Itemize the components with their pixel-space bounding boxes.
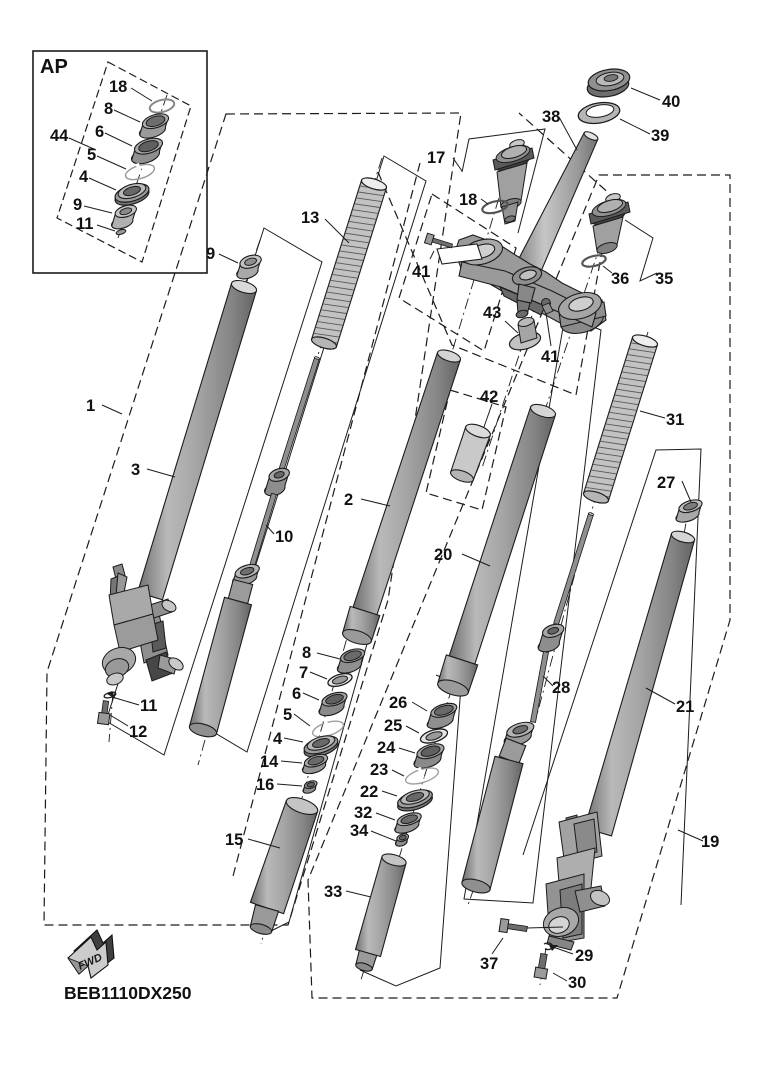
svg-text:2: 2 [344,491,353,509]
svg-text:26: 26 [389,694,407,712]
svg-text:14: 14 [260,753,279,771]
svg-text:12: 12 [129,723,147,741]
svg-text:5: 5 [87,146,96,164]
svg-text:40: 40 [662,93,680,111]
svg-text:10: 10 [275,528,293,546]
svg-text:44: 44 [50,127,69,145]
svg-text:18: 18 [459,191,477,209]
svg-text:16: 16 [256,776,274,794]
svg-text:15: 15 [225,831,243,849]
svg-text:9: 9 [206,245,215,263]
svg-text:42: 42 [480,388,498,406]
svg-text:33: 33 [324,883,342,901]
svg-text:18: 18 [109,78,127,96]
svg-text:5: 5 [283,706,292,724]
svg-text:4: 4 [273,730,283,748]
svg-text:41: 41 [412,263,430,281]
svg-text:22: 22 [360,783,378,801]
svg-text:9: 9 [73,196,82,214]
svg-text:8: 8 [104,100,113,118]
svg-text:39: 39 [651,127,669,145]
svg-text:8: 8 [302,644,311,662]
svg-text:AP: AP [40,56,68,78]
svg-text:7: 7 [299,664,308,682]
svg-text:43: 43 [483,304,501,322]
svg-text:21: 21 [676,698,694,716]
svg-text:37: 37 [480,955,498,973]
svg-text:29: 29 [575,947,593,965]
svg-text:17: 17 [427,149,445,167]
svg-text:6: 6 [292,685,301,703]
svg-text:1: 1 [86,397,95,415]
svg-text:23: 23 [370,761,388,779]
svg-text:32: 32 [354,804,372,822]
svg-text:3: 3 [131,461,140,479]
svg-text:30: 30 [568,974,586,992]
svg-text:4: 4 [79,168,89,186]
svg-text:25: 25 [384,717,402,735]
svg-text:28: 28 [552,679,570,697]
svg-text:34: 34 [350,822,369,840]
svg-text:11: 11 [76,215,93,233]
svg-text:BEB1110DX250: BEB1110DX250 [64,983,192,1003]
svg-text:19: 19 [701,833,719,851]
svg-text:31: 31 [666,411,684,429]
svg-text:6: 6 [95,123,104,141]
svg-text:35: 35 [655,270,673,288]
svg-text:13: 13 [301,209,319,227]
svg-text:38: 38 [542,108,560,126]
svg-text:27: 27 [657,474,675,492]
svg-text:36: 36 [611,270,629,288]
svg-text:11: 11 [140,697,157,715]
svg-text:20: 20 [434,546,452,564]
svg-text:24: 24 [377,739,396,757]
svg-text:41: 41 [541,348,559,366]
